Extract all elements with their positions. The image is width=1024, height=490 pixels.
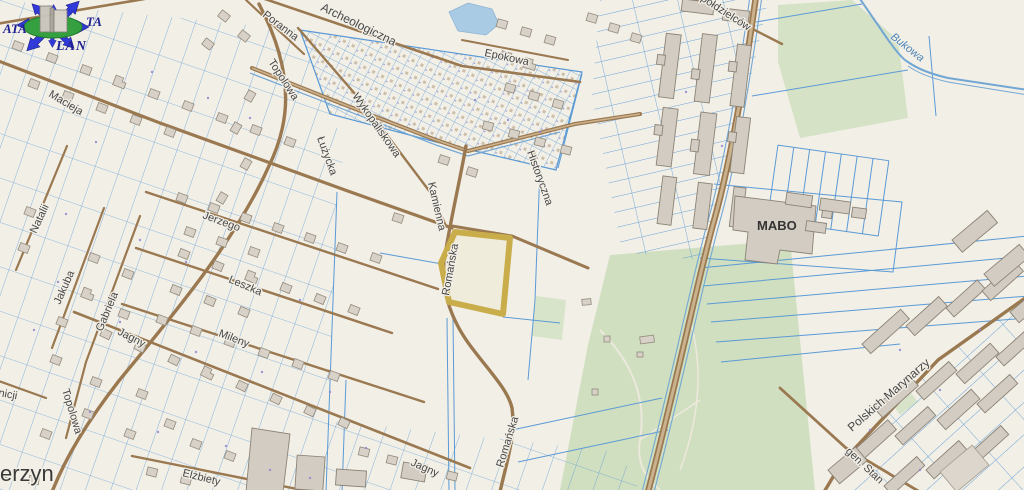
logo-text-bottom: LAN (55, 39, 87, 54)
logo-text-left: ATA (2, 21, 27, 36)
map-canvas[interactable]: Macieja Natalii Jakuba Gabriela Jerzego … (0, 0, 1024, 490)
logo-building-icon (40, 6, 67, 32)
place-label-erzyn: erzyn (0, 461, 54, 486)
logo-text-right: TA (86, 14, 102, 29)
area-label-mabo: MABO (757, 218, 797, 233)
